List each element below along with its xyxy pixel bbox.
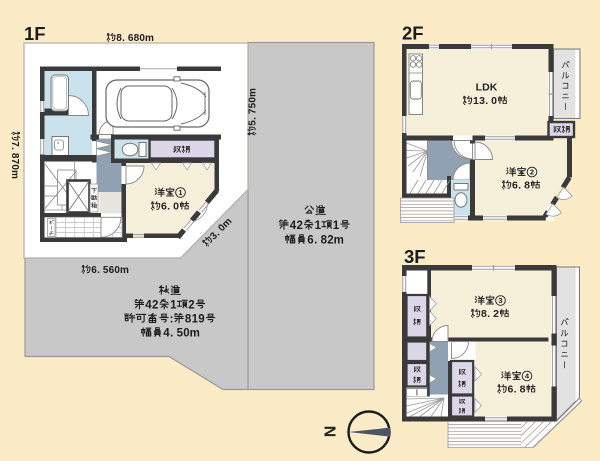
svg-text:1: 1 (473, 95, 479, 107)
svg-text:1: 1 (170, 300, 177, 312)
svg-text:6: 6 (507, 384, 513, 396)
svg-text:.: . (518, 180, 521, 192)
svg-text:.: . (122, 33, 125, 44)
svg-text:.: . (167, 201, 170, 213)
svg-text:2: 2 (188, 300, 194, 312)
svg-text:N: N (323, 426, 340, 438)
svg-text:2F: 2F (402, 23, 424, 44)
svg-text:m: m (190, 328, 200, 340)
svg-text:8: 8 (520, 384, 526, 396)
svg-text:.: . (97, 265, 100, 276)
svg-text:.: . (514, 384, 517, 396)
svg-text:2: 2 (296, 220, 302, 232)
svg-text:0: 0 (491, 95, 497, 107)
svg-text:3: 3 (498, 296, 502, 305)
svg-text:.: . (248, 117, 259, 120)
svg-text:m: m (334, 235, 344, 247)
svg-text:8: 8 (481, 308, 487, 320)
svg-text:.: . (487, 308, 490, 320)
svg-text:1: 1 (315, 220, 322, 232)
svg-text:.: . (170, 328, 173, 340)
svg-text:.: . (314, 235, 317, 247)
svg-text:0: 0 (173, 201, 179, 213)
svg-text:3: 3 (479, 95, 485, 107)
svg-text::: : (170, 314, 174, 326)
svg-text:m: m (9, 170, 20, 179)
svg-text:1F: 1F (24, 23, 46, 44)
svg-text:2: 2 (493, 308, 499, 320)
svg-text:K: K (490, 82, 498, 94)
svg-text:.: . (9, 147, 20, 150)
svg-text:m: m (145, 33, 154, 44)
svg-text:8: 8 (524, 180, 530, 192)
svg-text:m: m (248, 88, 259, 97)
svg-text:6: 6 (161, 201, 167, 213)
svg-text:6: 6 (307, 235, 313, 247)
svg-text:2: 2 (152, 300, 158, 312)
svg-text:6: 6 (512, 180, 518, 192)
svg-text:9: 9 (198, 314, 204, 326)
svg-text:1: 1 (333, 220, 340, 232)
svg-text:2: 2 (530, 168, 534, 177)
svg-text:3F: 3F (404, 246, 426, 267)
svg-text:m: m (120, 265, 129, 276)
svg-text:.: . (485, 95, 488, 107)
